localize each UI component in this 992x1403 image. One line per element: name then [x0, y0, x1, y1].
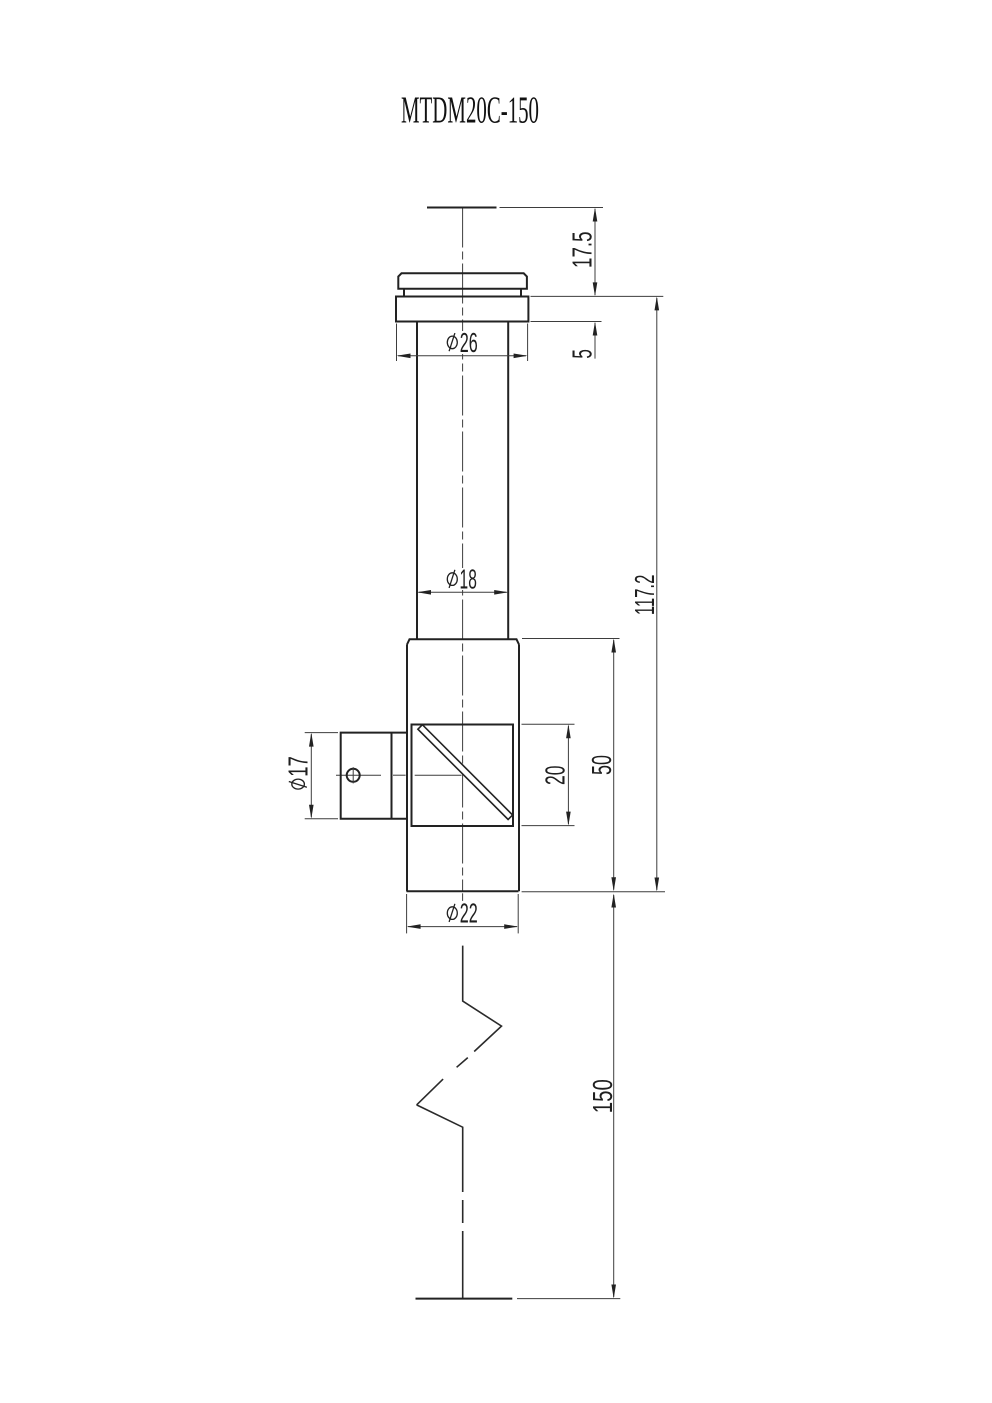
- svg-text:26: 26: [460, 327, 478, 358]
- svg-text:17: 17: [283, 756, 314, 777]
- svg-text:50: 50: [586, 755, 617, 775]
- svg-text:22: 22: [460, 898, 478, 929]
- svg-text:5: 5: [567, 349, 598, 359]
- svg-text:117.2: 117.2: [629, 575, 660, 616]
- svg-text:20: 20: [540, 765, 571, 785]
- svg-text:18: 18: [460, 564, 477, 595]
- svg-text:MTDM20C-150: MTDM20C-150: [401, 90, 539, 132]
- svg-text:17.5: 17.5: [567, 231, 598, 268]
- svg-text:150: 150: [587, 1079, 618, 1113]
